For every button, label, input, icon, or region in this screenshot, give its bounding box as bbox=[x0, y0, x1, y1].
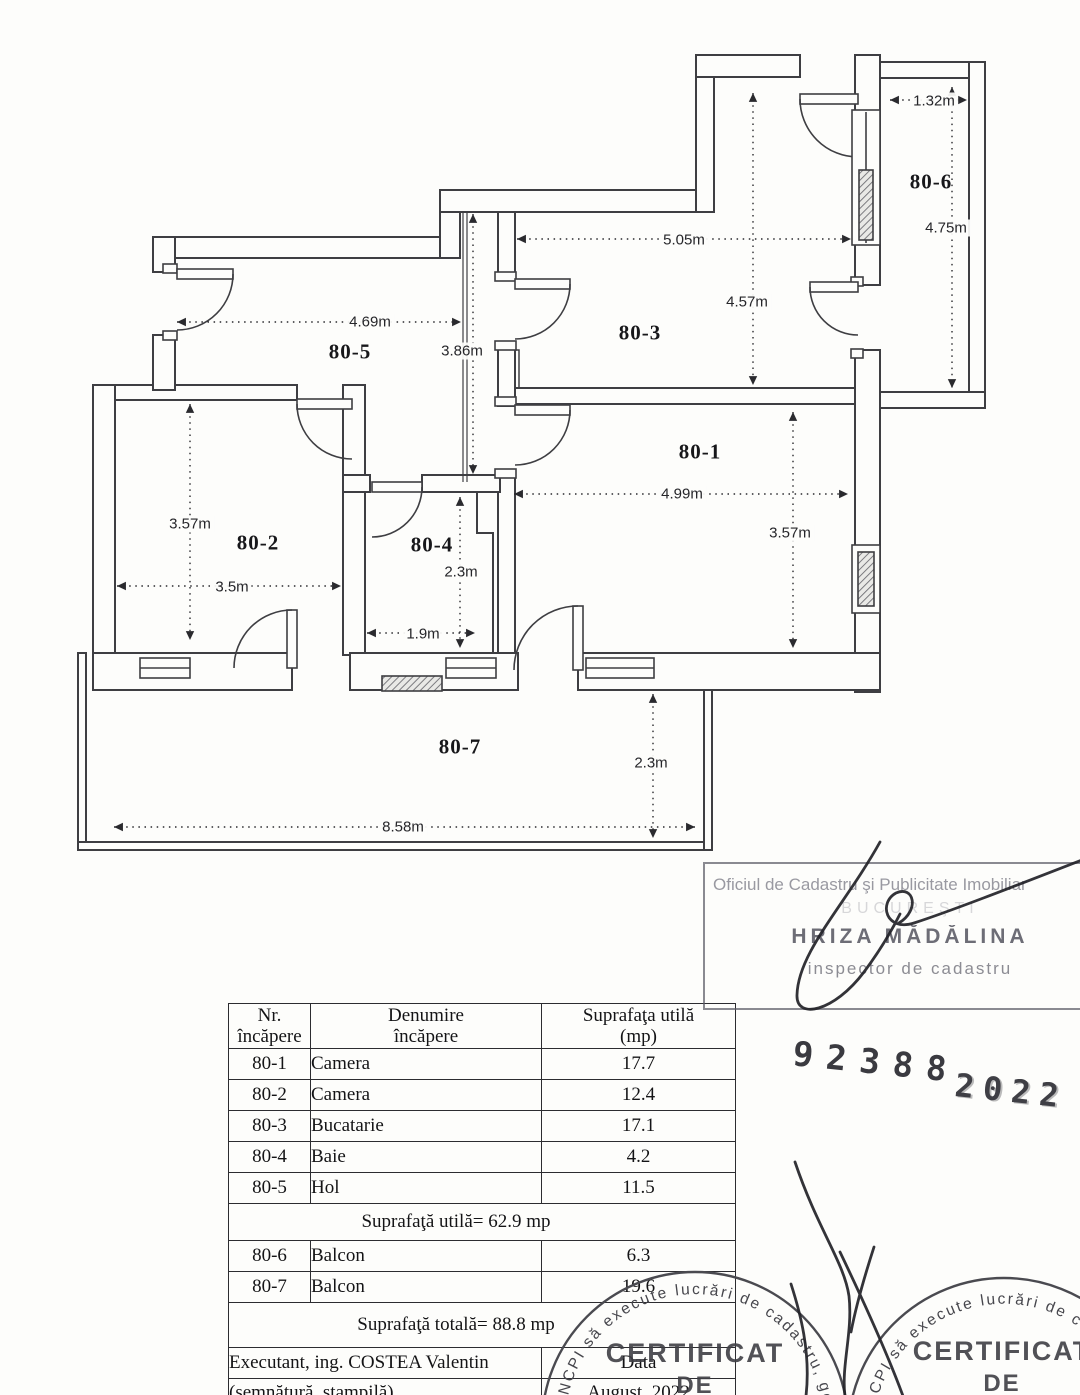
dimension-lines-group bbox=[114, 87, 967, 838]
table-row-80-6: 80-6Balcon6.3 bbox=[229, 1241, 736, 1272]
table-cell: 80-4 bbox=[229, 1142, 311, 1173]
table-cell: Balcon bbox=[311, 1241, 542, 1272]
scanned-cadastral-document: Nr.încăpere Denumireîncăpere Suprafaţa u… bbox=[0, 0, 1080, 1395]
rooms-tbody: 80-1Camera17.780-2Camera12.480-3Bucatari… bbox=[229, 1049, 736, 1204]
room-label-80-5: 80-5 bbox=[329, 340, 372, 365]
table-cell: 4.2 bbox=[542, 1142, 736, 1173]
table-row-80-5: 80-5Hol11.5 bbox=[229, 1173, 736, 1204]
stamp-office-name: Oficiul de Cadastru şi Publicitate Imobi… bbox=[713, 875, 1080, 895]
table-cell: Baie bbox=[311, 1142, 542, 1173]
table-row-80-2: 80-2Camera12.4 bbox=[229, 1080, 736, 1111]
dimension-label: 2.3m bbox=[631, 755, 670, 772]
dimension-label: 8.58m bbox=[379, 819, 427, 836]
signature-note-cell: (semnătură, ştampilă) bbox=[229, 1379, 542, 1395]
dimension-label: 2.3m bbox=[441, 564, 480, 581]
header-nr: Nr.încăpere bbox=[229, 1004, 311, 1049]
dimension-label: 1.32m bbox=[910, 93, 958, 110]
certificate-subtitle-right: DE bbox=[983, 1370, 1020, 1395]
certificate-title-right: CERTIFICAT bbox=[913, 1336, 1080, 1366]
table-cell: 80-5 bbox=[229, 1173, 311, 1204]
table-cell: Camera bbox=[311, 1049, 542, 1080]
total-cell: Suprafaţă totală= 88.8 mp bbox=[229, 1303, 736, 1348]
dimension-label: 4.69m bbox=[346, 314, 394, 331]
registration-year-stamp: 2022 bbox=[953, 1066, 1069, 1116]
header-denumire: Denumireîncăpere bbox=[311, 1004, 542, 1049]
stamp-inspector-name: HRIZA MĂDĂLINA bbox=[705, 925, 1080, 949]
dimension-label: 3.57m bbox=[766, 525, 814, 542]
table-row-80-1: 80-1Camera17.7 bbox=[229, 1049, 736, 1080]
dimension-label: 5.05m bbox=[660, 232, 708, 249]
dimension-label: 3.5m bbox=[212, 579, 251, 596]
dimension-label: 3.57m bbox=[166, 516, 214, 533]
header-suprafata: Suprafaţa utilă(mp) bbox=[542, 1004, 736, 1049]
windows-group bbox=[140, 110, 880, 691]
table-cell: Hol bbox=[311, 1173, 542, 1204]
table-cell: 80-1 bbox=[229, 1049, 311, 1080]
room-area-table: Nr.încăpere Denumireîncăpere Suprafaţa u… bbox=[228, 1003, 736, 1395]
balconies-tbody: 80-6Balcon6.380-7Balcon19.6 bbox=[229, 1241, 736, 1303]
table-cell: Camera bbox=[311, 1080, 542, 1111]
signature-row: (semnătură, ştampilă) August, 2022 bbox=[229, 1379, 736, 1395]
executant-row: Executant, ing. COSTEA Valentin Data bbox=[229, 1348, 736, 1379]
room-label-80-6: 80-6 bbox=[910, 170, 953, 195]
table-cell: Bucatarie bbox=[311, 1111, 542, 1142]
table-cell: 80-7 bbox=[229, 1272, 311, 1303]
table-row-80-3: 80-3Bucatarie17.1 bbox=[229, 1111, 736, 1142]
table-row-80-4: 80-4Baie4.2 bbox=[229, 1142, 736, 1173]
dimension-label: 4.99m bbox=[658, 486, 706, 503]
walls-group bbox=[78, 55, 985, 850]
room-label-80-7: 80-7 bbox=[439, 735, 482, 760]
table-cell: 80-2 bbox=[229, 1080, 311, 1111]
stamp-city: BUCUREŞTI bbox=[705, 900, 1080, 918]
dimension-label: 3.86m bbox=[438, 343, 486, 360]
table-cell: 12.4 bbox=[542, 1080, 736, 1111]
dimension-label: 1.9m bbox=[403, 626, 442, 643]
room-label-80-1: 80-1 bbox=[679, 440, 722, 465]
registration-number-stamp: 92388 bbox=[791, 1034, 962, 1091]
executant-cell: Executant, ing. COSTEA Valentin bbox=[229, 1348, 542, 1379]
table-cell: 80-6 bbox=[229, 1241, 311, 1272]
subtotal-cell: Suprafaţă utilă= 62.9 mp bbox=[229, 1204, 736, 1241]
room-label-80-4: 80-4 bbox=[411, 533, 454, 558]
room-label-80-3: 80-3 bbox=[619, 321, 662, 346]
date-label-cell: Data bbox=[542, 1348, 736, 1379]
subtotal-row: Suprafaţă utilă= 62.9 mp bbox=[229, 1204, 736, 1241]
cadastre-office-stamp: Oficiul de Cadastru şi Publicitate Imobi… bbox=[703, 862, 1080, 1010]
table-header-row: Nr.încăpere Denumireîncăpere Suprafaţa u… bbox=[229, 1004, 736, 1049]
doors-group bbox=[163, 94, 863, 670]
room-label-80-2: 80-2 bbox=[237, 531, 280, 556]
svg-text:ată de ANCPI să execute lucrăr: ată de ANCPI să execute lucrări de cadas… bbox=[859, 1291, 1080, 1395]
table-cell: 11.5 bbox=[542, 1173, 736, 1204]
table-row-80-7: 80-7Balcon19.6 bbox=[229, 1272, 736, 1303]
table-cell: 80-3 bbox=[229, 1111, 311, 1142]
total-row: Suprafaţă totală= 88.8 mp bbox=[229, 1303, 736, 1348]
table-cell: 19.6 bbox=[542, 1272, 736, 1303]
stamp-inspector-title: inspector de cadastru bbox=[705, 959, 1080, 979]
dimension-label: 4.57m bbox=[723, 294, 771, 311]
table-cell: 17.7 bbox=[542, 1049, 736, 1080]
table-cell: 17.1 bbox=[542, 1111, 736, 1142]
dimension-label: 4.75m bbox=[922, 220, 970, 237]
date-value-cell: August, 2022 bbox=[542, 1379, 736, 1395]
certificate-stamp-right: ată de ANCPI să execute lucrări de cadas… bbox=[848, 1278, 1080, 1395]
table-cell: 6.3 bbox=[542, 1241, 736, 1272]
table-cell: Balcon bbox=[311, 1272, 542, 1303]
